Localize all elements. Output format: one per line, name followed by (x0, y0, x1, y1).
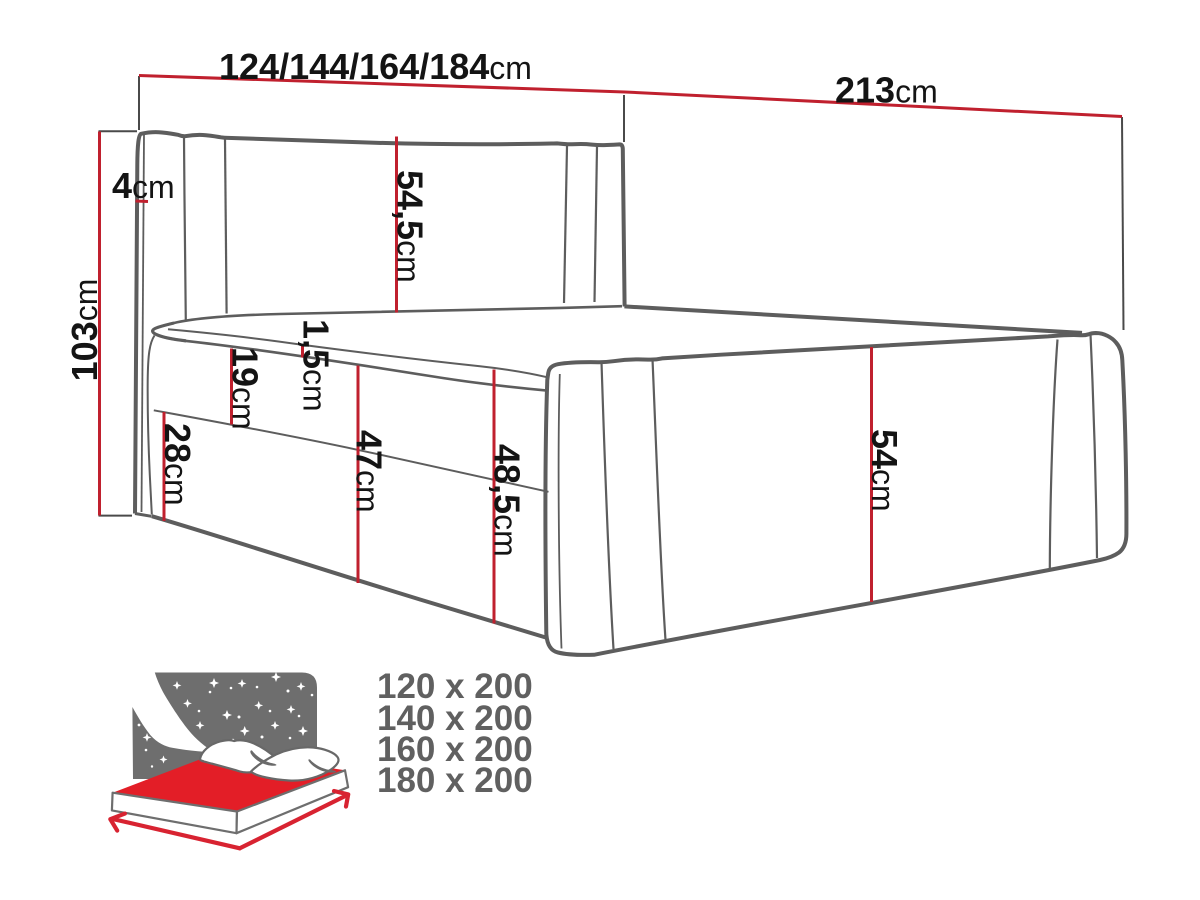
svg-text:48,5cm: 48,5cm (487, 444, 528, 557)
svg-text:103cm: 103cm (64, 279, 105, 382)
svg-text:124/144/164/184cm: 124/144/164/184cm (219, 46, 532, 87)
svg-text:47cm: 47cm (349, 430, 390, 513)
svg-text:28cm: 28cm (157, 423, 198, 506)
svg-text:54cm: 54cm (864, 429, 905, 512)
svg-text:54,5cm: 54,5cm (390, 170, 431, 283)
svg-text:180 x 200: 180 x 200 (377, 761, 533, 800)
svg-text:4cm: 4cm (112, 165, 175, 206)
svg-text:213cm: 213cm (835, 70, 938, 111)
svg-text:1,5cm: 1,5cm (296, 319, 337, 412)
svg-text:19cm: 19cm (225, 347, 266, 430)
